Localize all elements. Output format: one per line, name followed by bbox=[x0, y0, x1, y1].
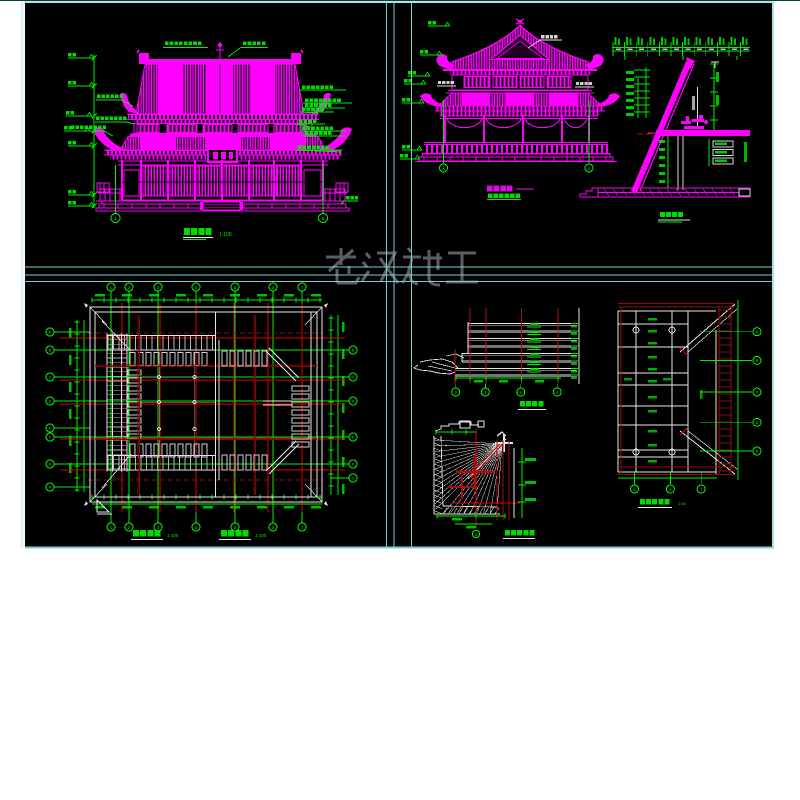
svg-text:1:100: 1:100 bbox=[219, 232, 232, 238]
svg-text:1:50: 1:50 bbox=[678, 501, 687, 506]
svg-text:D: D bbox=[756, 421, 759, 425]
svg-text:1:100: 1:100 bbox=[167, 533, 179, 538]
svg-text:A: A bbox=[442, 166, 445, 171]
svg-text:C: C bbox=[756, 391, 759, 395]
svg-text:G: G bbox=[49, 463, 52, 467]
svg-text:C: C bbox=[352, 376, 355, 380]
svg-text:D: D bbox=[588, 166, 591, 171]
svg-text:C: C bbox=[49, 376, 52, 380]
svg-text:1:100: 1:100 bbox=[255, 533, 267, 538]
svg-text:D: D bbox=[49, 400, 52, 404]
svg-text:D: D bbox=[352, 400, 355, 404]
svg-text:H: H bbox=[49, 486, 52, 490]
svg-text:G: G bbox=[352, 477, 355, 481]
